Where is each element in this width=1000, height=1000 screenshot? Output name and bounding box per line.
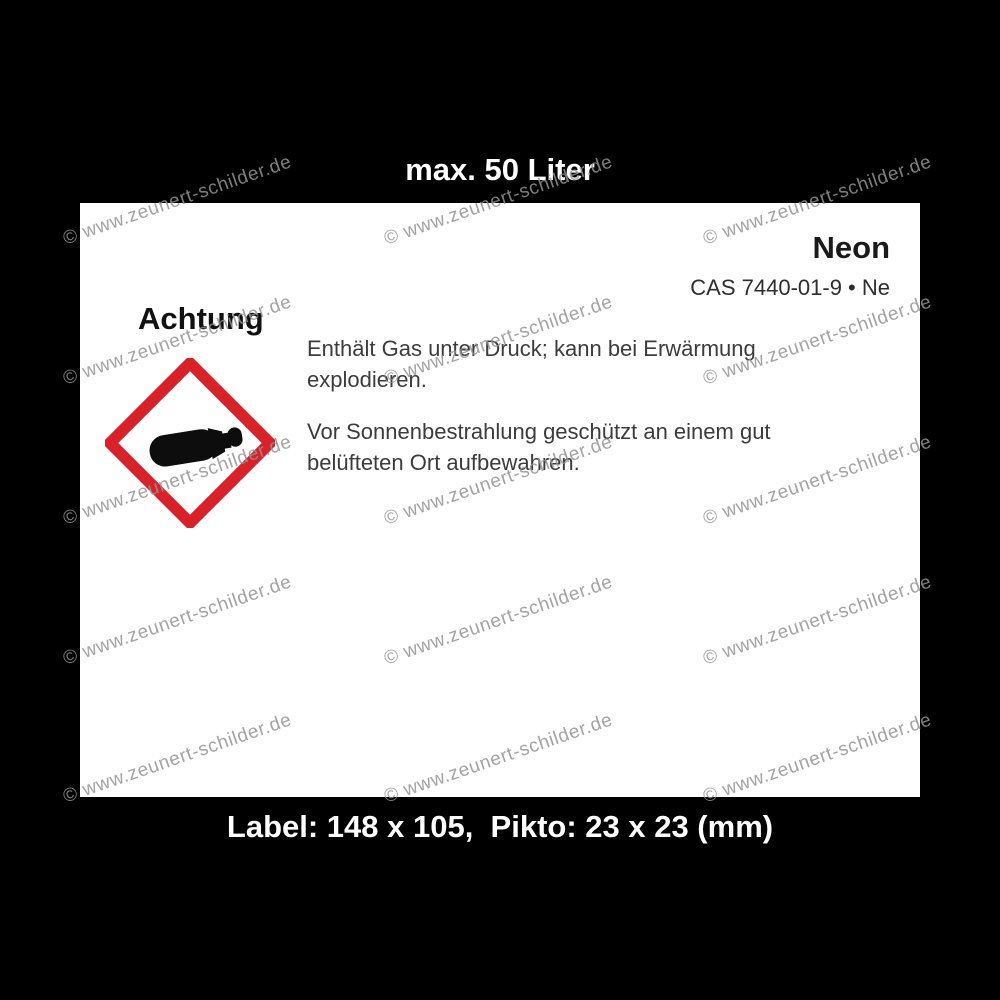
ghs04-gas-cylinder-icon (105, 358, 275, 528)
statements-block: Enthält Gas unter Druck; kann bei Erwärm… (307, 333, 771, 499)
dimensions-caption: Label: 148 x 105, Pikto: 23 x 23 (mm) (0, 808, 1000, 845)
signal-word: Achtung (138, 301, 264, 337)
ghs-label: Neon CAS 7440-01-9 • Ne Achtung Enthält … (80, 203, 920, 797)
cas-number: CAS 7440-01-9 • Ne (690, 275, 890, 301)
precaution-statement: Vor Sonnenbestrahlung geschützt an einem… (307, 416, 771, 478)
max-volume-caption: max. 50 Liter (0, 151, 1000, 188)
precaution-statement-line: belüfteten Ort aufbewahren. (307, 447, 771, 478)
hazard-statement-line: Enthält Gas unter Druck; kann bei Erwärm… (307, 333, 771, 364)
precaution-statement-line: Vor Sonnenbestrahlung geschützt an einem… (307, 416, 771, 447)
product-preview: max. 50 Liter Neon CAS 7440-01-9 • Ne Ac… (0, 0, 1000, 1000)
product-name: Neon (813, 230, 891, 266)
hazard-statement: Enthält Gas unter Druck; kann bei Erwärm… (307, 333, 771, 395)
hazard-statement-line: explodieren. (307, 364, 771, 395)
